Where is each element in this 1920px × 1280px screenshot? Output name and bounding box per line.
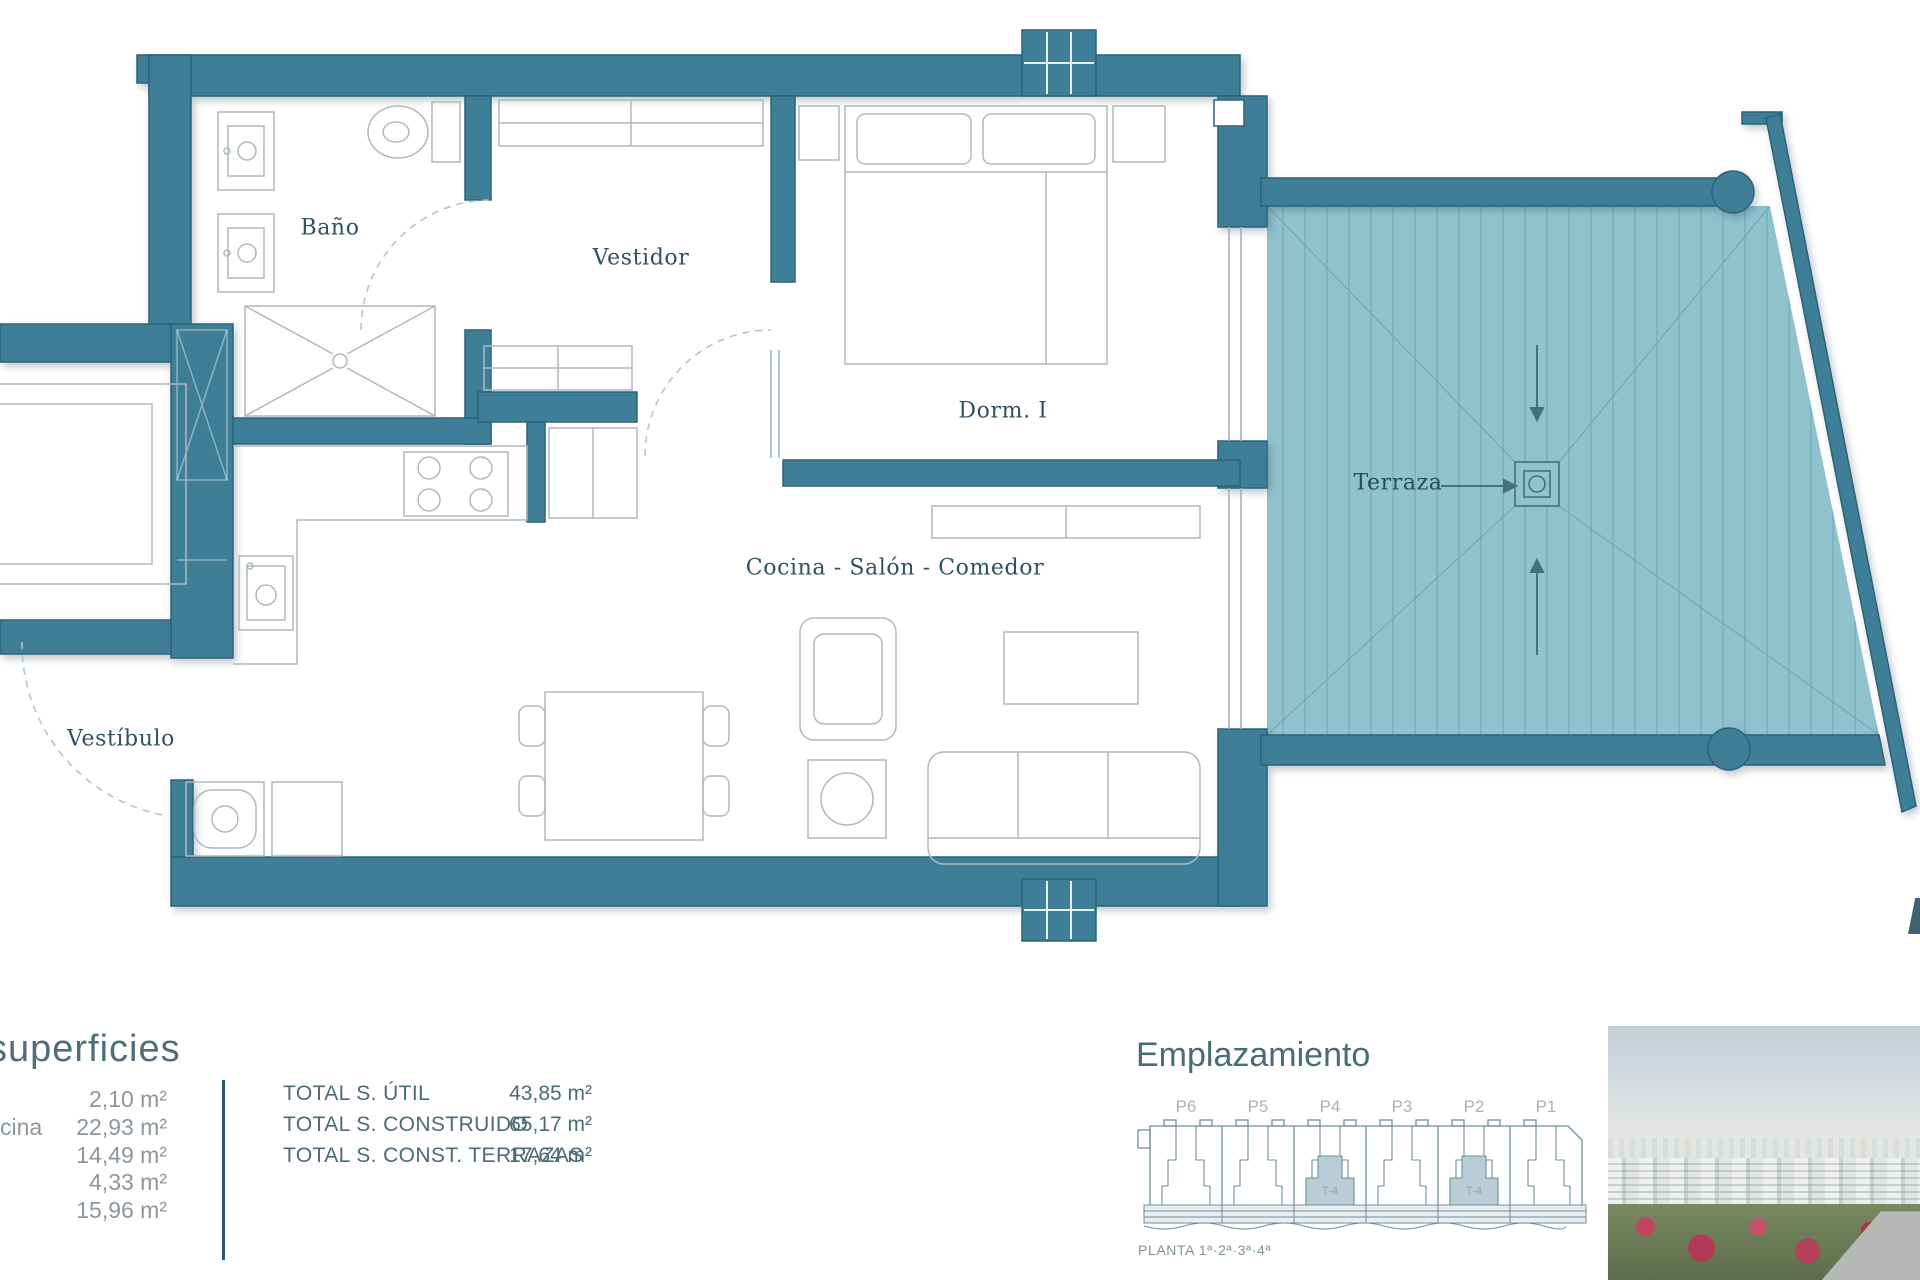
- table-divider: [222, 1080, 225, 1260]
- coffee-table: [1004, 632, 1138, 704]
- interior-walls: [233, 96, 1240, 522]
- unit-highlight-label: T-4: [1322, 1185, 1338, 1197]
- total-construido-value: 65,17 m²: [452, 1113, 592, 1137]
- floor-drain-icon: [1515, 462, 1559, 506]
- emplazamiento-caption: PLANTA 1ª·2ª·3ª·4ª: [1138, 1242, 1271, 1258]
- bed: [845, 106, 1107, 364]
- shower-icon: [245, 306, 435, 416]
- portal-label: P5: [1248, 1097, 1269, 1116]
- total-util-value: 43,85 m²: [452, 1082, 592, 1106]
- site-diagram: P6 P5 P4 P3 P2 P1 T-4 T-4: [1130, 1090, 1600, 1250]
- armchair: [800, 618, 896, 740]
- washing-machine-icon: [186, 782, 264, 856]
- aerial-photo: [1608, 1026, 1920, 1280]
- photo-sky: [1608, 1026, 1920, 1148]
- portal-label: P2: [1464, 1097, 1485, 1116]
- bath-sink-icon: [218, 112, 274, 190]
- toilet-icon: [368, 102, 460, 162]
- unit-highlight-label: T-4: [1466, 1185, 1482, 1197]
- kitchen-sink-icon: [239, 556, 293, 630]
- kitchen-column-cabinet: [549, 428, 637, 518]
- dining-table: [519, 692, 729, 840]
- surface-value: 2,10 m²: [0, 1086, 167, 1113]
- bedroom-door-arc: [645, 330, 771, 456]
- emplazamiento-title: Emplazamiento: [1136, 1036, 1370, 1075]
- room-label-vestibulo: Vestíbulo: [67, 727, 175, 752]
- surface-value: 15,96 m²: [0, 1197, 167, 1224]
- page: { "colors": { "wall": "#3E7E97", "terrac…: [0, 0, 1920, 1280]
- bath-sink-icon: [218, 214, 274, 292]
- room-label-terraza: Terraza: [1353, 471, 1442, 496]
- room-label-bano: Baño: [300, 216, 359, 241]
- media-console: [932, 506, 1200, 538]
- room-label-cocina-salon-comedor: Cocina - Salón - Comedor: [746, 556, 1044, 581]
- total-util-label: TOTAL S. ÚTIL: [283, 1082, 430, 1106]
- wardrobe: [484, 346, 632, 390]
- room-label-dorm1: Dorm. I: [958, 399, 1047, 424]
- pillar: [1708, 728, 1750, 770]
- superficies-title: superficies: [0, 1028, 181, 1071]
- nightstand: [1113, 106, 1165, 162]
- storage-unit: [272, 782, 342, 856]
- side-table: [808, 760, 886, 838]
- portal-label: P1: [1536, 1097, 1557, 1116]
- neighbor-bed: [0, 384, 186, 584]
- pillar: [1712, 171, 1754, 213]
- portal-label: P6: [1176, 1097, 1197, 1116]
- door-arcs: [22, 200, 771, 816]
- portal-label: P4: [1320, 1097, 1341, 1116]
- surface-value: 22,93 m²: [0, 1114, 167, 1141]
- total-terrazas-value: 17,64 m²: [452, 1144, 592, 1168]
- unit-highlight: [1306, 1156, 1498, 1205]
- surface-value: 4,33 m²: [0, 1169, 167, 1196]
- floor-plan: [0, 0, 1920, 1000]
- building-outline: [1138, 1120, 1582, 1205]
- nightstand: [799, 106, 839, 160]
- wardrobe: [499, 100, 763, 146]
- hob-icon: [404, 452, 508, 516]
- surface-value: 14,49 m²: [0, 1142, 167, 1169]
- portal-label: P3: [1392, 1097, 1413, 1116]
- ground-strip: [1144, 1205, 1586, 1229]
- sofa: [928, 752, 1200, 864]
- room-label-vestidor: Vestidor: [593, 246, 690, 271]
